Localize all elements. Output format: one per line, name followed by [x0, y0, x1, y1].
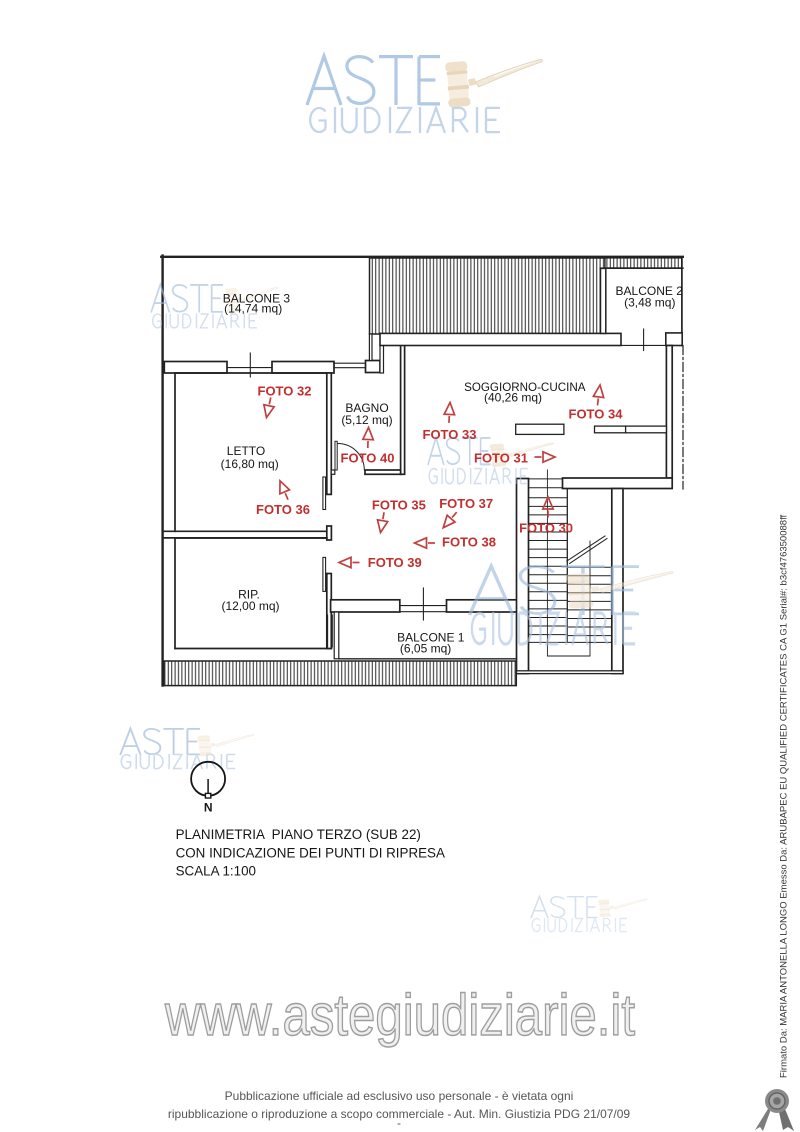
svg-text:(16,80 mq): (16,80 mq) — [221, 457, 279, 471]
svg-text:PLANIMETRIA PIANO TERZO (SUB: PLANIMETRIA PIANO TERZO (SUB 22) — [176, 827, 421, 842]
svg-text:FOTO 31: FOTO 31 — [474, 451, 528, 466]
svg-text:SCALA 1:100: SCALA 1:100 — [176, 864, 256, 879]
svg-text:www.astegiudiziarie.it: www.astegiudiziarie.it — [164, 983, 635, 1048]
svg-text:FOTO 36: FOTO 36 — [256, 502, 310, 517]
svg-text:FOTO 37: FOTO 37 — [439, 496, 493, 511]
svg-text:(5,12 mq): (5,12 mq) — [341, 413, 392, 427]
svg-text:CON INDICAZIONE DEI PUNTI DI R: CON INDICAZIONE DEI PUNTI DI RIPRESA — [176, 846, 445, 861]
svg-text:(6,05 mq): (6,05 mq) — [400, 642, 451, 656]
svg-text:(14,74 mq): (14,74 mq) — [224, 302, 282, 316]
svg-text:(3,48 mq): (3,48 mq) — [624, 295, 675, 309]
svg-text:(40,26 mq): (40,26 mq) — [484, 391, 542, 405]
svg-text:FOTO 33: FOTO 33 — [423, 427, 477, 442]
svg-text:-: - — [397, 1116, 401, 1130]
svg-text:Pubblicazione ufficiale ad esc: Pubblicazione ufficiale ad esclusivo uso… — [225, 1089, 574, 1103]
svg-text:FOTO 39: FOTO 39 — [368, 555, 422, 570]
svg-text:FOTO 30: FOTO 30 — [519, 521, 573, 536]
svg-text:(12,00 mq): (12,00 mq) — [221, 599, 279, 613]
svg-text:FOTO 32: FOTO 32 — [258, 384, 312, 399]
svg-text:N: N — [204, 801, 213, 815]
svg-text:FOTO 40: FOTO 40 — [341, 451, 395, 466]
svg-text:LETTO: LETTO — [227, 444, 265, 458]
svg-text:Firmato Da: MARIA ANTONELLA LO: Firmato Da: MARIA ANTONELLA LONGO Emesso… — [779, 514, 790, 1078]
svg-text:FOTO 35: FOTO 35 — [372, 498, 426, 513]
svg-text:FOTO 38: FOTO 38 — [442, 535, 496, 550]
svg-text:FOTO 34: FOTO 34 — [569, 407, 624, 422]
